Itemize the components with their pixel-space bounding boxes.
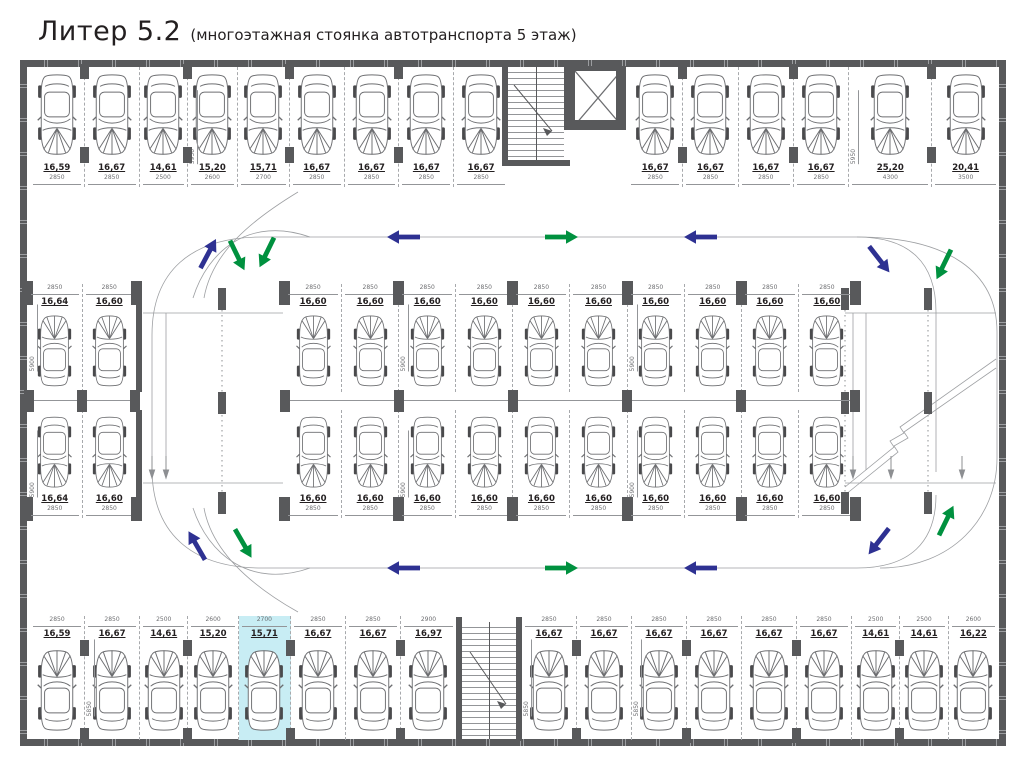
parking-space[interactable]: 2850 16,60 5900 — [399, 284, 456, 392]
car-slot — [36, 67, 78, 163]
car-slot — [466, 410, 503, 494]
car-slot — [36, 308, 73, 392]
space-area-label: 16,60 — [585, 494, 612, 505]
car-icon — [91, 646, 133, 734]
width-dimension: 2850 — [456, 505, 512, 518]
car-icon — [580, 311, 617, 390]
space-area-label: 15,71 — [251, 629, 278, 640]
car-slot — [297, 640, 339, 740]
parking-space[interactable]: 2850 16,67 5850 — [522, 616, 577, 740]
space-area-label: 16,67 — [358, 163, 385, 174]
car-icon — [638, 646, 680, 734]
depth-dimension: 5900 — [29, 431, 38, 498]
parking-space[interactable]: 2850 16,60 — [83, 410, 137, 518]
page-title: Литер 5.2 (многоэтажная стоянка автотран… — [38, 16, 577, 47]
space-area-label: 16,60 — [756, 297, 783, 308]
parking-space[interactable]: 2600 15,20 — [188, 616, 238, 740]
width-dimension: 2850 — [399, 284, 455, 297]
width-dimension: 3500 — [932, 174, 999, 187]
parking-space[interactable]: 2850 16,60 — [342, 284, 399, 392]
car-icon — [91, 413, 128, 492]
parking-space[interactable]: 2600 15,20 5950 — [188, 67, 238, 187]
space-area-label: 16,67 — [360, 629, 387, 640]
elevator-wall — [570, 120, 616, 126]
staircase-bottom — [462, 622, 516, 739]
car-slot — [903, 640, 945, 740]
space-area-label: 16,60 — [585, 297, 612, 308]
core-wall — [502, 160, 570, 166]
width-dimension: 2700 — [239, 616, 290, 629]
car-slot — [580, 308, 617, 392]
width-dimension: 2850 — [685, 284, 741, 297]
space-area-label: 16,67 — [305, 629, 332, 640]
car-icon — [351, 71, 393, 159]
width-dimension: 2850 — [28, 505, 82, 518]
center-block-divider — [285, 392, 855, 410]
depth-dimension: 5900 — [400, 305, 409, 372]
car-icon — [296, 71, 338, 159]
car-slot — [192, 640, 234, 740]
parking-space[interactable]: 2850 16,60 — [285, 410, 342, 518]
car-slot — [142, 67, 184, 163]
parking-space[interactable]: 2850 16,60 — [285, 284, 342, 392]
parking-space[interactable]: 2850 16,67 — [290, 67, 345, 187]
car-icon — [466, 311, 503, 390]
parking-space[interactable]: 2850 16,60 — [799, 410, 855, 518]
parking-row-top-right: 2850 16,67 2850 16,67 — [628, 67, 999, 187]
left-block-bottom-row: 2850 16,64 5900 2850 16,60 — [28, 410, 136, 518]
car-slot — [405, 67, 447, 163]
car-icon — [808, 311, 845, 390]
space-area-label: 16,67 — [752, 163, 779, 174]
car-slot — [693, 640, 735, 740]
car-icon — [243, 646, 285, 734]
car-slot — [91, 640, 133, 740]
width-dimension: 2850 — [742, 616, 796, 629]
car-slot — [295, 308, 332, 392]
space-area-label: 16,67 — [646, 629, 673, 640]
space-area-label: 20,41 — [952, 163, 979, 174]
wall-top — [20, 60, 1006, 67]
parking-space[interactable]: 2700 15,71 — [238, 67, 290, 187]
space-area-label: 14,61 — [911, 629, 938, 640]
space-area-label: 14,61 — [862, 629, 889, 640]
space-area-label: 16,59 — [43, 163, 70, 174]
space-area-label: 16,67 — [701, 629, 728, 640]
car-slot — [751, 410, 788, 494]
car-icon — [91, 71, 133, 159]
depth-dimension: 5900 — [400, 431, 409, 498]
parking-space[interactable]: 2700 15,71 — [239, 616, 291, 740]
parking-space[interactable]: 2850 16,59 — [30, 67, 85, 187]
car-slot — [751, 308, 788, 392]
car-icon — [409, 413, 446, 492]
parking-space[interactable]: 2850 16,60 — [685, 410, 742, 518]
parking-space[interactable]: 2850 16,67 — [742, 616, 797, 740]
space-area-label: 16,67 — [642, 163, 669, 174]
width-dimension: 2500 — [140, 616, 187, 629]
space-area-label: 16,67 — [413, 163, 440, 174]
car-icon — [142, 71, 184, 159]
width-dimension: 2850 — [794, 174, 848, 187]
width-dimension: 2850 — [799, 284, 855, 297]
width-dimension: 2850 — [346, 616, 400, 629]
width-dimension: 2850 — [739, 174, 793, 187]
car-slot — [580, 410, 617, 494]
parking-space[interactable]: 2850 16,60 — [342, 410, 399, 518]
space-area-label: 16,60 — [96, 297, 123, 308]
title-subtitle: (многоэтажная стоянка автотранспорта 5 э… — [190, 26, 576, 44]
car-icon — [523, 311, 560, 390]
space-area-label: 16,67 — [808, 163, 835, 174]
space-area-label: 16,60 — [471, 494, 498, 505]
car-icon — [952, 646, 994, 734]
width-dimension: 2500 — [852, 616, 899, 629]
space-area-label: 16,60 — [642, 494, 669, 505]
car-slot — [748, 640, 790, 740]
width-dimension: 2850 — [628, 174, 682, 187]
width-dimension: 2850 — [28, 284, 82, 297]
space-area-label: 25,20 — [877, 163, 904, 174]
parking-space[interactable]: 2850 16,67 — [577, 616, 632, 740]
depth-dimension: 5900 — [629, 305, 638, 372]
width-dimension: 2850 — [345, 174, 399, 187]
center-block-bottom-row: 2850 16,60 2850 16,60 — [285, 410, 855, 518]
space-area-label: 16,60 — [414, 494, 441, 505]
car-slot — [352, 640, 394, 740]
width-dimension: 2850 — [683, 174, 737, 187]
car-slot — [638, 640, 680, 740]
width-dimension: 2850 — [83, 284, 137, 297]
depth-dimension: 5950 — [850, 90, 859, 164]
parking-space[interactable]: 2850 16,60 — [456, 410, 513, 518]
space-area-label: 16,67 — [536, 629, 563, 640]
parking-space[interactable]: 2850 16,67 — [794, 67, 849, 187]
width-dimension: 2850 — [285, 505, 341, 518]
space-area-label: 16,60 — [357, 297, 384, 308]
parking-space[interactable]: 2500 14,61 — [140, 616, 188, 740]
car-slot — [460, 67, 502, 163]
width-dimension: 2600 — [188, 616, 237, 629]
center-block-top-row: 2850 16,60 2850 16,60 — [285, 284, 855, 392]
car-icon — [751, 311, 788, 390]
parking-space[interactable]: 2850 16,67 — [628, 67, 683, 187]
car-slot — [352, 308, 389, 392]
parking-space[interactable]: 2850 16,67 — [797, 616, 852, 740]
car-slot — [143, 640, 185, 740]
car-icon — [751, 413, 788, 492]
width-dimension: 2850 — [30, 616, 84, 629]
car-icon — [694, 413, 731, 492]
car-icon — [192, 646, 234, 734]
parking-space[interactable]: 2850 16,59 — [30, 616, 85, 740]
car-slot — [528, 640, 570, 740]
parking-space[interactable]: 2850 16,60 5900 — [399, 410, 456, 518]
car-slot — [409, 410, 446, 494]
parking-space[interactable]: 2850 16,60 — [513, 284, 570, 392]
parking-space[interactable]: 2500 14,61 — [852, 616, 900, 740]
car-slot — [694, 410, 731, 494]
wall-bottom — [20, 739, 1006, 746]
space-area-label: 15,71 — [250, 163, 277, 174]
space-area-label: 16,67 — [697, 163, 724, 174]
parking-space[interactable]: 2850 16,60 — [685, 284, 742, 392]
car-slot — [296, 67, 338, 163]
car-slot — [295, 410, 332, 494]
car-slot — [945, 67, 987, 163]
parking-space[interactable]: 2850 16,67 5850 — [85, 616, 140, 740]
space-area-label: 16,60 — [96, 494, 123, 505]
space-area-label: 16,60 — [699, 297, 726, 308]
left-block-top-row: 2850 16,64 5900 2850 16,60 — [28, 284, 136, 392]
width-dimension: 2850 — [797, 616, 851, 629]
car-slot — [407, 640, 449, 740]
car-icon — [523, 413, 560, 492]
width-dimension: 2850 — [285, 284, 341, 297]
space-area-label: 16,60 — [813, 297, 840, 308]
width-dimension: 2500 — [140, 174, 187, 187]
width-dimension: 2850 — [290, 174, 344, 187]
car-slot — [800, 67, 842, 163]
car-icon — [580, 413, 617, 492]
car-slot — [523, 410, 560, 494]
car-icon — [409, 311, 446, 390]
parking-space[interactable]: 2850 16,60 — [83, 284, 137, 392]
car-slot — [36, 640, 78, 740]
car-slot — [745, 67, 787, 163]
car-icon — [352, 311, 389, 390]
parking-space[interactable]: 2500 14,61 — [900, 616, 948, 740]
parking-space[interactable]: 2850 16,67 — [291, 616, 346, 740]
car-icon — [528, 646, 570, 734]
wall-right — [999, 60, 1006, 746]
car-slot — [855, 640, 897, 740]
space-area-label: 16,67 — [591, 629, 618, 640]
width-dimension: 2850 — [85, 616, 139, 629]
width-dimension: 2850 — [456, 284, 512, 297]
car-icon — [407, 646, 449, 734]
parking-space[interactable]: 2850 16,67 — [345, 67, 400, 187]
depth-dimension: 5850 — [523, 640, 532, 717]
car-slot — [637, 410, 674, 494]
space-area-label: 16,67 — [811, 629, 838, 640]
car-icon — [295, 413, 332, 492]
width-dimension: 2850 — [342, 505, 398, 518]
width-dimension: 2850 — [342, 284, 398, 297]
parking-space[interactable]: 2850 16,67 — [346, 616, 401, 740]
space-area-label: 16,59 — [44, 629, 71, 640]
depth-dimension: 5950 — [189, 90, 198, 164]
parking-space[interactable]: 2850 16,64 5900 — [28, 410, 83, 518]
car-slot — [689, 67, 731, 163]
space-area-label: 16,64 — [41, 494, 68, 505]
car-slot — [808, 410, 845, 494]
parking-space[interactable]: 2850 16,67 — [85, 67, 140, 187]
car-slot — [466, 308, 503, 392]
car-slot — [91, 308, 128, 392]
space-area-label: 16,60 — [357, 494, 384, 505]
car-slot — [91, 410, 128, 494]
space-area-label: 16,60 — [471, 297, 498, 308]
width-dimension: 4300 — [849, 174, 931, 187]
space-area-label: 16,60 — [813, 494, 840, 505]
width-dimension: 2600 — [949, 616, 998, 629]
space-area-label: 16,60 — [300, 297, 327, 308]
car-slot — [91, 67, 133, 163]
car-icon — [693, 646, 735, 734]
space-area-label: 16,67 — [99, 629, 126, 640]
car-icon — [297, 646, 339, 734]
depth-dimension: 5900 — [29, 305, 38, 372]
car-slot — [634, 67, 676, 163]
parking-space[interactable]: 2850 16,67 — [687, 616, 742, 740]
car-slot — [242, 67, 284, 163]
width-dimension: 2850 — [685, 505, 741, 518]
parking-space[interactable]: 2900 16,97 — [401, 616, 456, 740]
car-icon — [242, 71, 284, 159]
car-icon — [36, 646, 78, 734]
width-dimension: 2850 — [522, 616, 576, 629]
car-icon — [694, 311, 731, 390]
staircase-top — [508, 67, 564, 160]
parking-space[interactable]: 2850 16,60 — [570, 410, 627, 518]
space-area-label: 16,60 — [300, 494, 327, 505]
space-area-label: 16,60 — [699, 494, 726, 505]
car-icon — [803, 646, 845, 734]
car-icon — [36, 71, 78, 159]
width-dimension: 2850 — [399, 174, 453, 187]
width-dimension: 2850 — [30, 174, 84, 187]
car-icon — [405, 71, 447, 159]
width-dimension: 2850 — [632, 616, 686, 629]
width-dimension: 2850 — [570, 284, 626, 297]
parking-space[interactable]: 2850 16,67 — [683, 67, 738, 187]
car-slot — [803, 640, 845, 740]
parking-space[interactable]: 2850 16,67 5850 — [632, 616, 687, 740]
width-dimension: 2700 — [238, 174, 289, 187]
parking-row-bottom-right: 2850 16,67 5850 2850 16,67 — [522, 616, 998, 740]
parking-space[interactable]: 2850 16,67 — [399, 67, 454, 187]
width-dimension: 2500 — [900, 616, 947, 629]
parking-space[interactable]: 2850 16,60 5900 — [628, 284, 685, 392]
car-icon — [466, 413, 503, 492]
car-slot — [808, 308, 845, 392]
car-icon — [637, 413, 674, 492]
car-slot — [869, 67, 911, 163]
width-dimension: 2850 — [83, 505, 137, 518]
parking-row-bottom-left: 2850 16,59 2850 16,67 — [30, 616, 456, 740]
space-area-label: 14,61 — [150, 629, 177, 640]
car-icon — [352, 646, 394, 734]
space-area-label: 16,60 — [642, 297, 669, 308]
parking-space[interactable]: 2850 16,60 — [742, 284, 799, 392]
width-dimension: 2850 — [628, 284, 684, 297]
car-slot — [352, 410, 389, 494]
left-block-divider — [28, 392, 136, 410]
left-block-wall — [136, 284, 142, 392]
parking-space[interactable]: 2850 16,60 — [799, 284, 855, 392]
parking-space[interactable]: 2500 14,61 — [140, 67, 188, 187]
space-area-label: 14,61 — [150, 163, 177, 174]
car-slot — [637, 308, 674, 392]
parking-space[interactable]: 2850 16,64 5900 — [28, 284, 83, 392]
parking-space[interactable]: 3500 20,41 — [932, 67, 999, 187]
car-icon — [855, 646, 897, 734]
width-dimension: 2850 — [577, 616, 631, 629]
space-area-label: 16,64 — [41, 297, 68, 308]
car-slot — [694, 308, 731, 392]
car-icon — [748, 646, 790, 734]
car-icon — [295, 311, 332, 390]
car-icon — [903, 646, 945, 734]
space-area-label: 15,20 — [199, 163, 226, 174]
space-area-label: 16,60 — [414, 297, 441, 308]
parking-space[interactable]: 2850 16,60 — [570, 284, 627, 392]
width-dimension: 2850 — [454, 174, 508, 187]
car-icon — [637, 311, 674, 390]
width-dimension: 2850 — [513, 505, 569, 518]
car-slot — [952, 640, 994, 740]
space-area-label: 16,97 — [415, 629, 442, 640]
car-slot — [243, 640, 285, 740]
car-icon — [800, 71, 842, 159]
parking-space[interactable]: 2850 16,67 — [454, 67, 508, 187]
space-area-label: 16,60 — [528, 494, 555, 505]
stair-wall — [516, 617, 522, 741]
width-dimension: 2850 — [513, 284, 569, 297]
core-wall — [616, 60, 622, 126]
width-dimension: 2850 — [85, 174, 139, 187]
parking-space[interactable]: 4300 25,20 5950 — [849, 67, 932, 187]
car-icon — [91, 311, 128, 390]
parking-space[interactable]: 2850 16,60 — [513, 410, 570, 518]
car-icon — [583, 646, 625, 734]
parking-space[interactable]: 2850 16,67 — [739, 67, 794, 187]
car-icon — [808, 413, 845, 492]
car-slot — [583, 640, 625, 740]
car-icon — [689, 71, 731, 159]
floor-plan-canvas: Литер 5.2 (многоэтажная стоянка автотран… — [0, 0, 1024, 759]
car-icon — [352, 413, 389, 492]
width-dimension: 2850 — [570, 505, 626, 518]
parking-space[interactable]: 2850 16,60 — [456, 284, 513, 392]
car-slot — [523, 308, 560, 392]
depth-dimension: 5900 — [629, 431, 638, 498]
width-dimension: 2850 — [291, 616, 345, 629]
car-icon — [634, 71, 676, 159]
space-area-label: 15,20 — [200, 629, 227, 640]
parking-space[interactable]: 2850 16,60 — [742, 410, 799, 518]
car-icon — [869, 71, 911, 159]
width-dimension: 2850 — [742, 505, 798, 518]
left-block-wall — [136, 410, 142, 518]
width-dimension: 2900 — [401, 616, 456, 629]
parking-space[interactable]: 2600 16,22 — [949, 616, 998, 740]
title-liter: Литер 5.2 — [38, 16, 181, 47]
depth-dimension: 5850 — [633, 640, 642, 717]
parking-space[interactable]: 2850 16,60 5900 — [628, 410, 685, 518]
width-dimension: 2850 — [628, 505, 684, 518]
space-area-label: 16,22 — [960, 629, 987, 640]
car-icon — [36, 311, 73, 390]
depth-dimension: 5850 — [86, 640, 95, 717]
car-slot — [36, 410, 73, 494]
space-area-label: 16,60 — [756, 494, 783, 505]
car-icon — [945, 71, 987, 159]
space-area-label: 16,67 — [468, 163, 495, 174]
parking-row-top-left: 2850 16,59 2850 16,67 — [30, 67, 508, 187]
space-area-label: 16,67 — [303, 163, 330, 174]
